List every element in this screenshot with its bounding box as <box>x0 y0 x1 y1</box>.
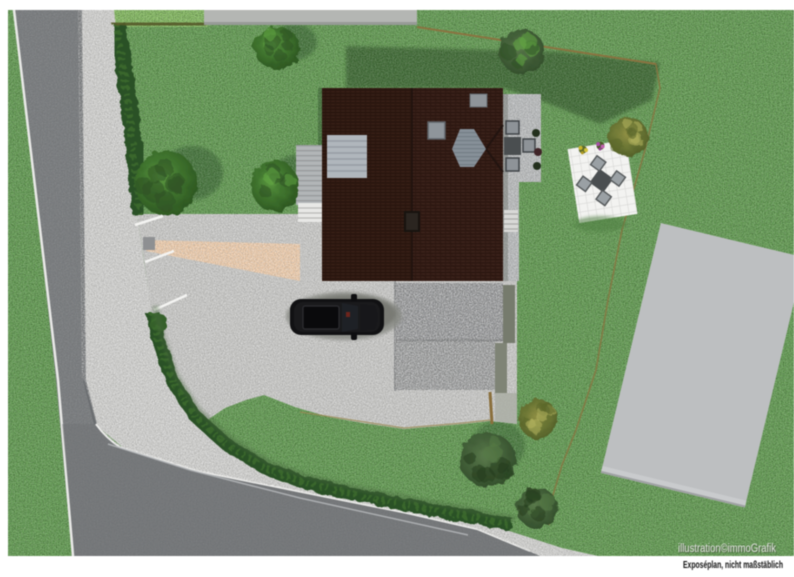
svg-text:Exposéplan, nicht maßstäblich: Exposéplan, nicht maßstäblich <box>683 560 783 571</box>
svg-text:illustration©immoGrafik: illustration©immoGrafik <box>678 543 776 555</box>
